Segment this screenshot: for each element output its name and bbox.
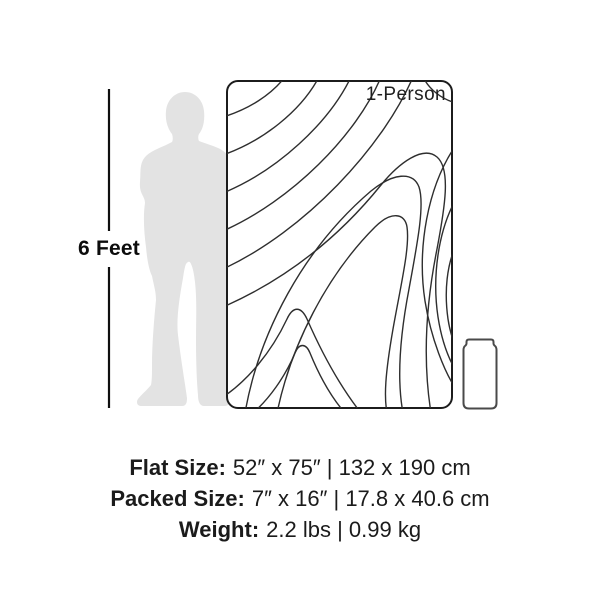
blanket-size-label: 1-Person <box>366 84 446 106</box>
height-label: 6 Feet <box>78 237 140 261</box>
blanket-outline <box>227 81 452 408</box>
spec-label: Weight: <box>179 517 259 542</box>
human-silhouette-icon <box>137 92 232 406</box>
packed-roll-icon <box>464 340 497 409</box>
product-size-infographic: 6 Feet 1-Person Flat Size:52″ x 75″ | 13… <box>0 0 600 600</box>
spec-value: 52″ x 75″ | 132 x 190 cm <box>233 455 471 480</box>
spec-value: 7″ x 16″ | 17.8 x 40.6 cm <box>252 486 490 511</box>
spec-line-weight: Weight:2.2 lbs | 0.99 kg <box>0 514 600 545</box>
spec-line-flat-size: Flat Size:52″ x 75″ | 132 x 190 cm <box>0 452 600 483</box>
spec-value: 2.2 lbs | 0.99 kg <box>266 517 421 542</box>
size-specs: Flat Size:52″ x 75″ | 132 x 190 cm Packe… <box>0 452 600 545</box>
spec-line-packed-size: Packed Size:7″ x 16″ | 17.8 x 40.6 cm <box>0 483 600 514</box>
spec-label: Packed Size: <box>110 486 245 511</box>
spec-label: Flat Size: <box>129 455 226 480</box>
